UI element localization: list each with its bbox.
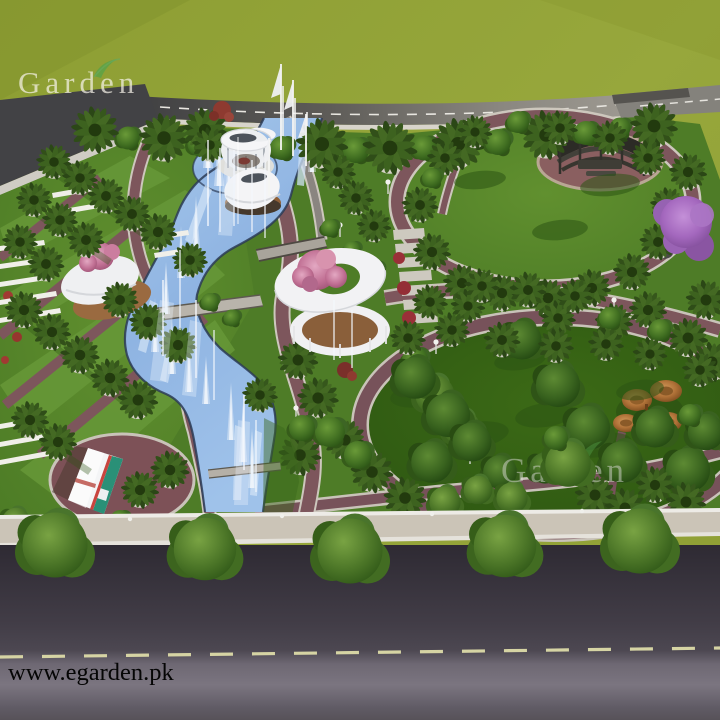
svg-text:Garden: Garden [18,65,139,100]
svg-text:www.egarden.pk: www.egarden.pk [8,659,175,686]
